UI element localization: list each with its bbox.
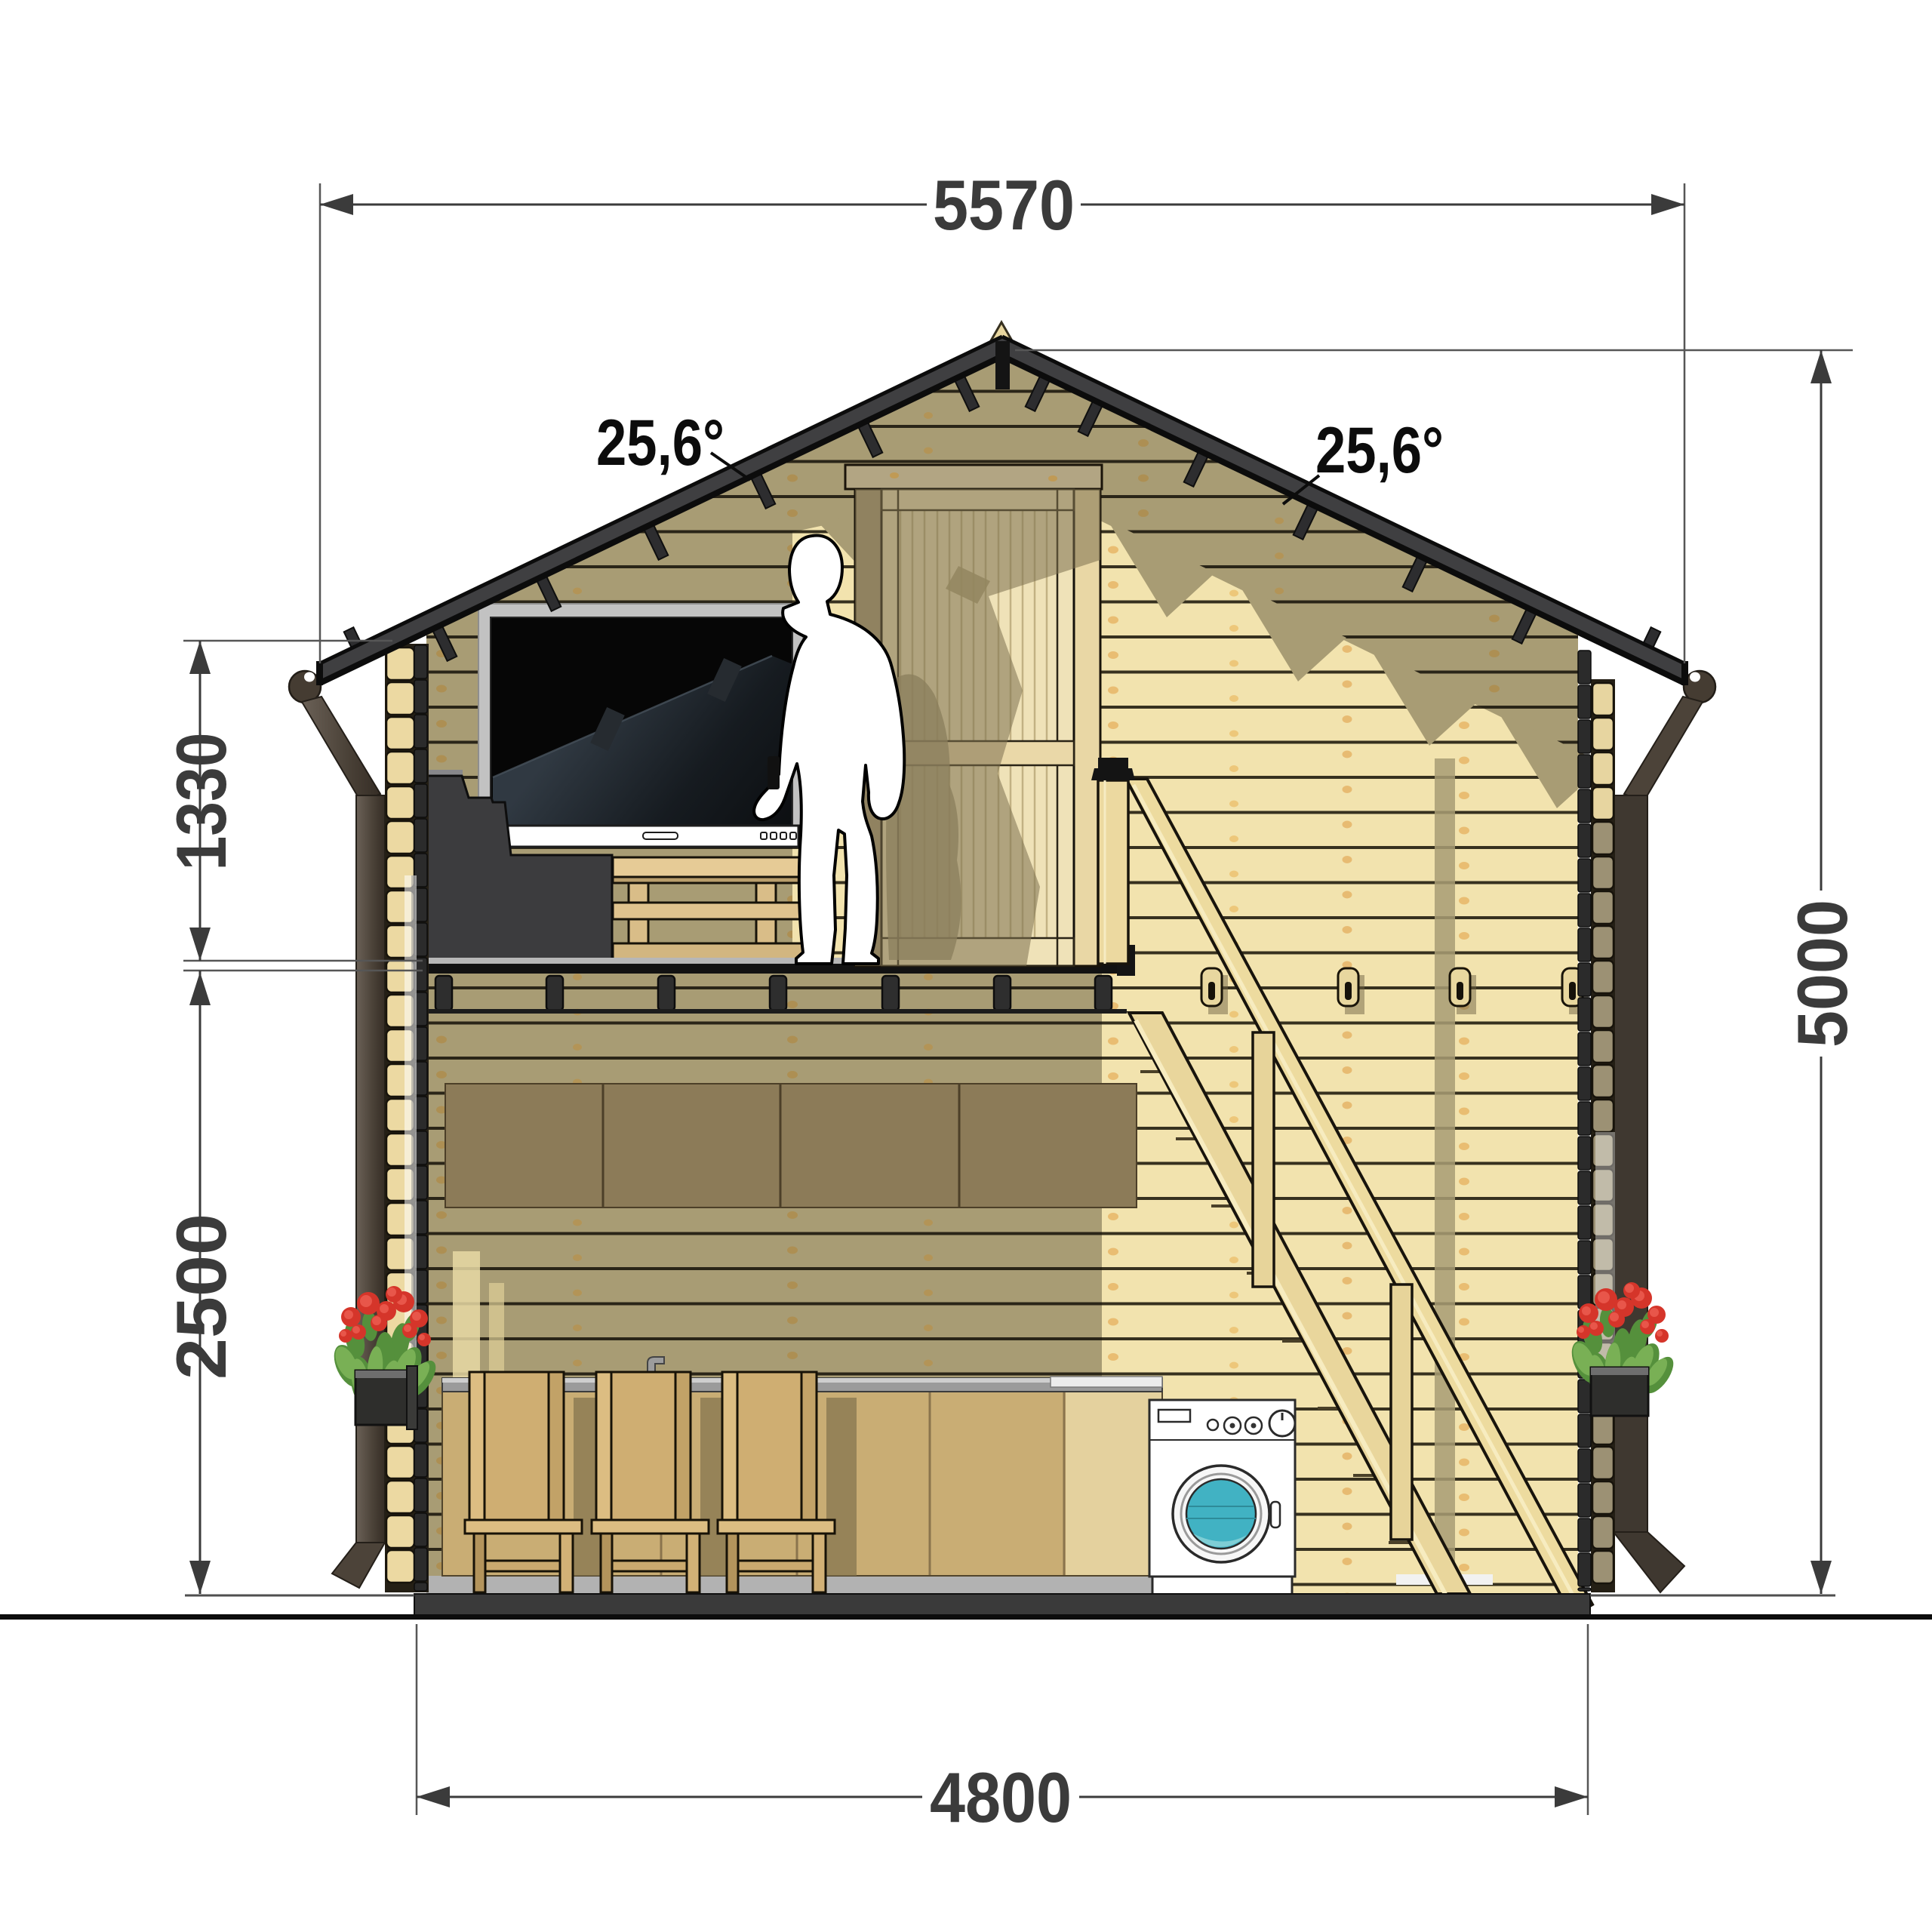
svg-text:2500: 2500: [162, 1214, 241, 1380]
svg-text:1330: 1330: [162, 733, 241, 871]
svg-text:25,6°: 25,6°: [596, 407, 724, 479]
svg-text:4800: 4800: [930, 1758, 1072, 1837]
svg-text:5570: 5570: [933, 165, 1075, 245]
svg-text:25,6°: 25,6°: [1315, 414, 1444, 487]
svg-text:5000: 5000: [1783, 900, 1862, 1048]
